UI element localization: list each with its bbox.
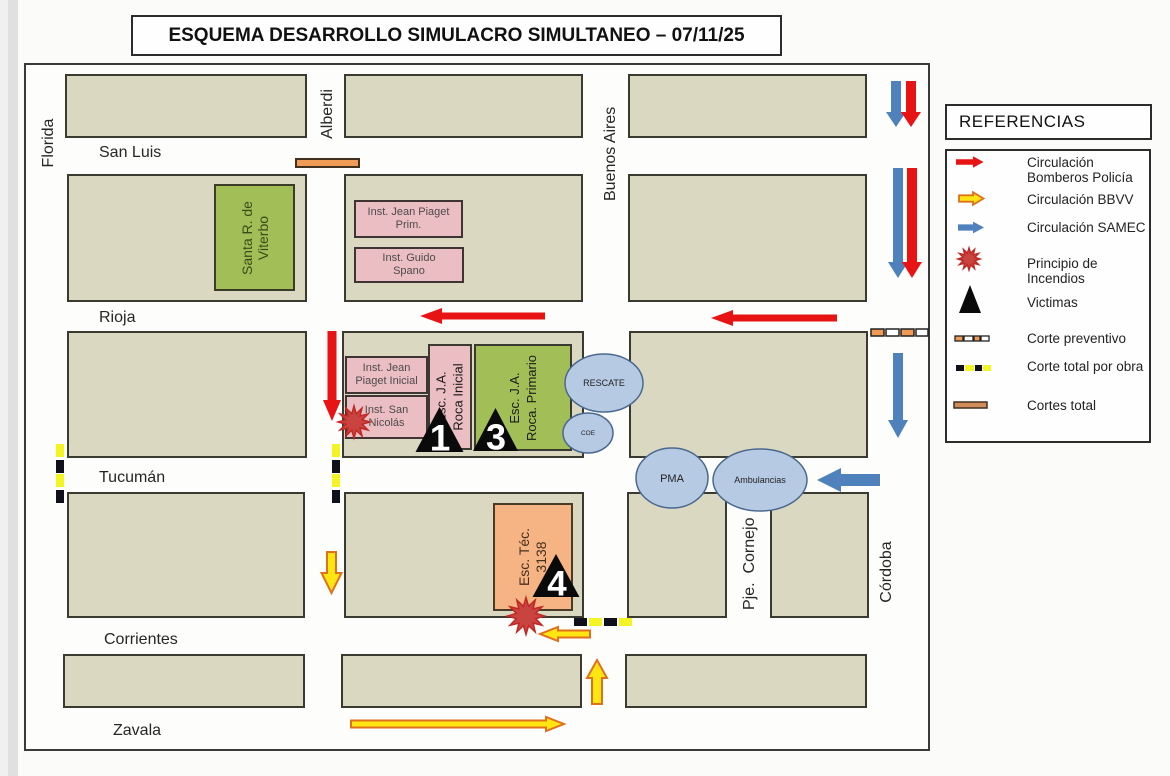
svg-text:COE: COE	[581, 430, 596, 437]
svg-text:PMA: PMA	[660, 473, 685, 485]
svg-text:3: 3	[486, 417, 506, 458]
svg-text:4: 4	[547, 565, 567, 604]
svg-text:1: 1	[430, 418, 451, 459]
svg-text:Ambulancias: Ambulancias	[734, 475, 786, 485]
svg-text:RESCATE: RESCATE	[583, 378, 625, 388]
